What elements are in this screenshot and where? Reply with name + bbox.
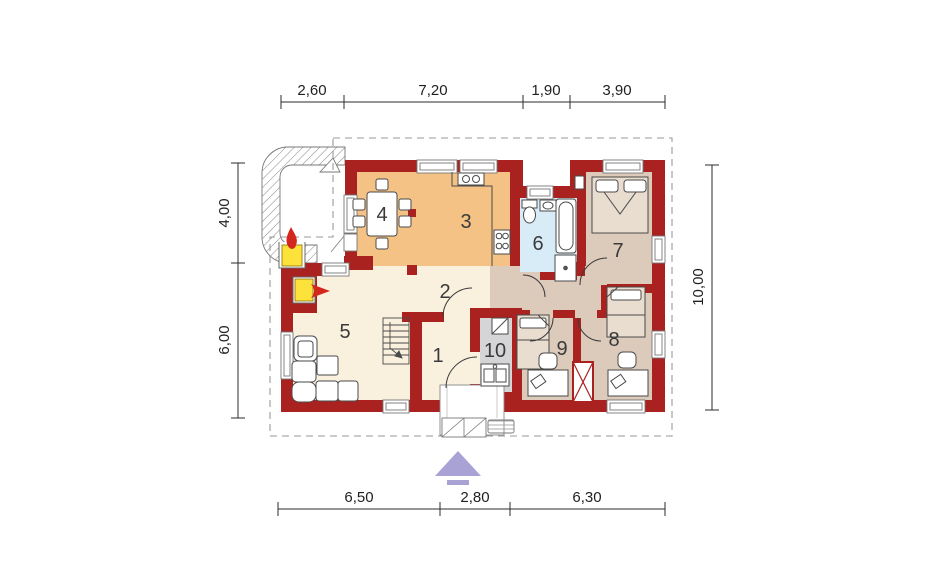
sofa-module	[292, 361, 316, 382]
doormat	[488, 420, 514, 433]
room-label-1: 1	[432, 345, 443, 367]
floor-plan-page: 1 2 3 4 5 6 7 8 9 10 2,60 7,20 1,90 3,90…	[0, 0, 940, 587]
room-label-9: 9	[556, 338, 567, 360]
room-label-4: 4	[376, 204, 387, 226]
dim-bottom-1: 6,50	[344, 489, 373, 506]
room-label-3: 3	[460, 211, 471, 233]
dim-top-3: 1,90	[531, 82, 560, 99]
sofa-corner	[292, 382, 316, 402]
entrance-steps	[442, 418, 486, 437]
dim-top-1: 2,60	[297, 82, 326, 99]
room-label-10: 10	[484, 340, 506, 362]
room-label-7: 7	[612, 240, 623, 262]
room-living-hall-floor	[293, 266, 490, 400]
nightstand	[575, 176, 584, 189]
dim-right-1: 10,00	[690, 268, 707, 306]
terrace-grill	[279, 227, 305, 268]
sofa-module	[316, 381, 338, 401]
dimension-line-left	[231, 163, 245, 418]
dimension-line-right	[705, 165, 719, 410]
dim-top-2: 7,20	[418, 82, 447, 99]
living-left-window	[281, 332, 293, 379]
entrance-porch	[440, 385, 514, 437]
dim-bottom-2: 2,80	[460, 489, 489, 506]
living-bottom-window	[383, 400, 409, 413]
coffee-table	[317, 356, 338, 375]
dim-top-4: 3,90	[602, 82, 631, 99]
bed-double	[592, 177, 648, 233]
room-label-2: 2	[439, 281, 450, 303]
room-label-5: 5	[339, 321, 350, 343]
floor-plan-drawing: 1 2 3 4 5 6 7 8 9 10 2,60 7,20 1,90 3,90…	[0, 0, 940, 587]
room-label-8: 8	[608, 329, 619, 351]
washbasin	[540, 200, 556, 211]
bathroom-window	[527, 186, 553, 199]
bedroom7-side-window	[652, 236, 665, 263]
bath-cabinet	[555, 255, 576, 281]
bedroom8-side-window	[652, 331, 665, 358]
dim-left-1: 4,00	[216, 198, 233, 227]
kitchen-window-2	[460, 160, 497, 173]
room-label-6: 6	[532, 233, 543, 255]
north-arrow-icon	[435, 451, 481, 485]
dim-left-2: 6,00	[216, 325, 233, 354]
wc-door-leaf	[492, 318, 508, 334]
terrace-door-opening	[331, 234, 357, 252]
cooktop	[494, 230, 510, 254]
desk-chair	[618, 352, 636, 368]
bedroom7-top-window	[603, 160, 643, 173]
bedroom8-bottom-window	[607, 400, 645, 413]
bathtub	[556, 199, 576, 253]
dim-bottom-3: 6,30	[572, 489, 601, 506]
ventilation-shaft	[573, 362, 593, 402]
wc-unit	[481, 364, 509, 386]
toilet	[522, 200, 537, 223]
sofa-module	[338, 381, 358, 401]
kitchen-window-1	[417, 160, 457, 173]
kitchen-sink	[458, 173, 484, 185]
desk-chair	[539, 353, 557, 369]
flame-icon	[287, 227, 297, 249]
terrace-wall-window	[322, 263, 349, 276]
